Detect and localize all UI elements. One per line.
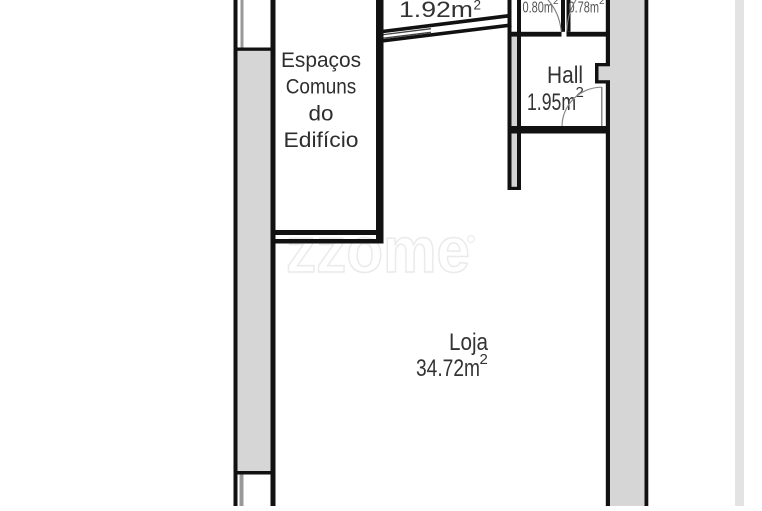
svg-text:Comuns: Comuns — [286, 75, 357, 99]
svg-text:1.95m: 1.95m — [527, 89, 576, 116]
svg-text:34.72m: 34.72m — [416, 355, 480, 382]
svg-text:2: 2 — [599, 0, 605, 7]
svg-text:2: 2 — [474, 0, 482, 13]
svg-text:0.80m: 0.80m — [523, 0, 554, 17]
svg-text:2: 2 — [480, 351, 488, 368]
svg-text:2: 2 — [553, 0, 559, 7]
svg-text:Espaços: Espaços — [281, 48, 361, 72]
svg-text:1.92m: 1.92m — [399, 0, 473, 22]
svg-text:Edifício: Edifício — [284, 128, 359, 152]
svg-text:do: do — [309, 102, 334, 126]
svg-text:0.78m: 0.78m — [569, 0, 600, 17]
